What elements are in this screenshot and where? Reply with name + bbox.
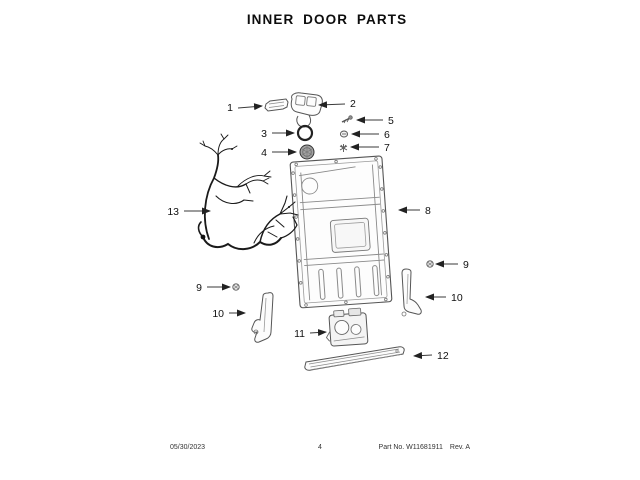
callout-8: 8 [399, 205, 431, 217]
callout-3-label: 3 [261, 128, 267, 140]
callout-4: 4 [261, 147, 296, 159]
callout-5-label: 5 [388, 115, 394, 127]
callout-13-label: 13 [167, 206, 179, 218]
callout-10-left-label: 10 [212, 308, 224, 320]
part-11-door-latch [325, 308, 368, 347]
page-title: INNER DOOR PARTS [0, 12, 640, 27]
callout-12: 12 [414, 350, 449, 362]
part-10-bracket-right [402, 269, 421, 316]
callout-2: 2 [319, 98, 356, 110]
callout-3: 3 [261, 128, 294, 140]
part-9-screw-right [427, 261, 433, 267]
callout-7: 7 [351, 142, 390, 154]
callout-10-right-label: 10 [451, 292, 463, 304]
callout-11: 11 [294, 328, 326, 340]
part-12-vent-grille [305, 347, 404, 371]
callout-5: 5 [357, 115, 394, 127]
part-3-o-ring [298, 126, 312, 140]
callout-12-label: 12 [437, 350, 449, 362]
part-2-vent-assembly [291, 93, 322, 127]
callout-6: 6 [352, 129, 390, 141]
callout-11-label: 11 [294, 328, 305, 340]
manual-page: INNER DOOR PARTS [0, 0, 640, 480]
callout-2-label: 2 [350, 98, 356, 110]
callout-8-label: 8 [425, 205, 431, 217]
callout-10-right: 10 [426, 292, 463, 304]
footer-part-number: Part No. W11681911 [379, 444, 443, 451]
part-10-bracket-left [252, 293, 273, 343]
callout-9-right: 9 [436, 259, 469, 271]
footer-part-info: Part No. W11681911Rev. A [379, 444, 470, 451]
part-7-screw [340, 144, 347, 152]
callout-9-left-label: 9 [196, 282, 202, 294]
exploded-parts-diagram: 1 2 3 4 5 6 7 8 [0, 0, 640, 480]
callout-9-left: 9 [196, 282, 230, 294]
callout-10-left: 10 [212, 308, 245, 320]
part-8-inner-door-panel [290, 156, 392, 308]
callout-1: 1 [227, 102, 262, 114]
callout-6-label: 6 [384, 129, 390, 141]
footer-revision: Rev. A [450, 444, 470, 451]
callout-9-right-label: 9 [463, 259, 469, 271]
callout-7-label: 7 [384, 142, 390, 154]
part-13-wire-harness [199, 134, 298, 249]
part-6-nut [340, 131, 347, 137]
part-9-screw-left [233, 284, 239, 290]
callout-13: 13 [167, 206, 210, 218]
part-5-screw [342, 116, 352, 123]
callout-4-label: 4 [261, 147, 267, 159]
footer-date: 05/30/2023 [170, 444, 205, 451]
footer-page-number: 4 [318, 444, 322, 451]
part-1-clip [265, 99, 288, 111]
part-4-grommet [300, 145, 314, 159]
callout-1-label: 1 [227, 102, 233, 114]
